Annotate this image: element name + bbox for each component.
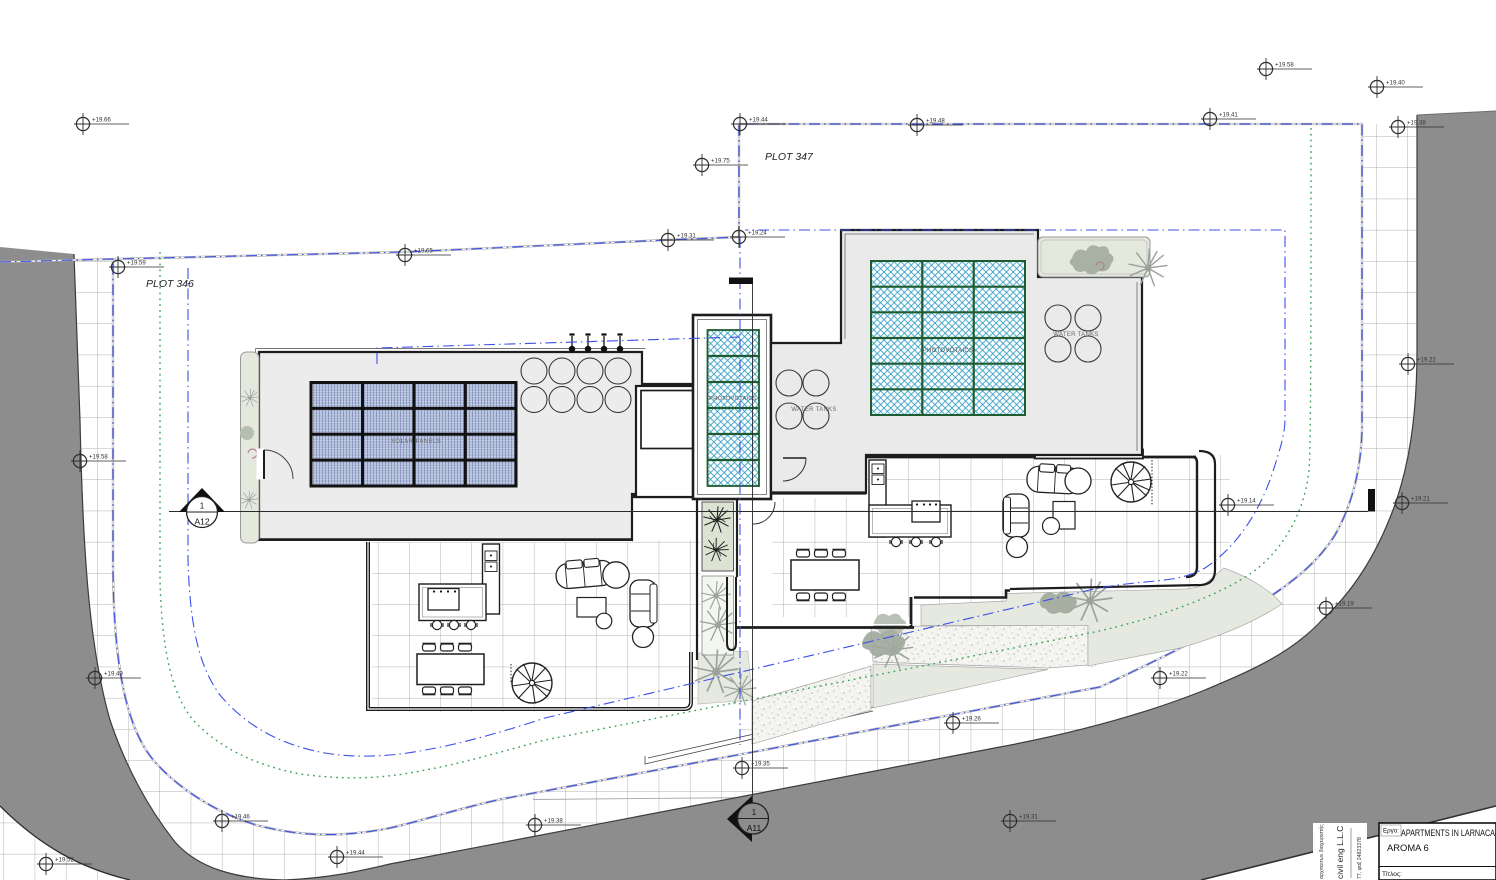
svg-text:+19.38: +19.38 <box>1407 120 1426 127</box>
svg-text:+19.22: +19.22 <box>1417 357 1436 364</box>
svg-text:WATER TANKS: WATER TANKS <box>791 407 836 413</box>
svg-text:+19.58: +19.58 <box>89 454 108 461</box>
svg-text:+19.66: +19.66 <box>92 117 111 124</box>
svg-text:+19.46: +19.46 <box>231 814 250 821</box>
svg-text:+19.44: +19.44 <box>346 850 365 857</box>
svg-text:+19.19: +19.19 <box>1335 601 1354 608</box>
svg-text:PLOT 346: PLOT 346 <box>146 278 194 290</box>
svg-text:PHOTOVOTAICS: PHOTOVOTAICS <box>709 396 757 402</box>
svg-text:+19.24: +19.24 <box>748 230 767 237</box>
svg-text:+19.49: +19.49 <box>104 671 123 678</box>
svg-text:Τίτλος:: Τίτλος: <box>1382 870 1402 878</box>
svg-text:+19.14: +19.14 <box>1237 498 1256 505</box>
svg-text:1: 1 <box>200 502 205 511</box>
svg-text:+19.44: +19.44 <box>749 117 768 124</box>
svg-text:+19.31: +19.31 <box>1019 814 1038 821</box>
svg-text:1: 1 <box>752 808 757 817</box>
svg-text:+19.65: +19.65 <box>414 248 433 255</box>
svg-text:PHOTOVOTAICS: PHOTOVOTAICS <box>923 348 974 354</box>
svg-text:+19.38: +19.38 <box>544 818 563 825</box>
svg-text:+19.48: +19.48 <box>926 118 945 125</box>
svg-text:A11: A11 <box>747 823 762 833</box>
svg-text:+19.75: +19.75 <box>711 158 730 165</box>
svg-text:SOLAR PANELS: SOLAR PANELS <box>391 439 441 445</box>
svg-text:+19.26: +19.26 <box>962 716 981 723</box>
svg-text:Εργο:: Εργο: <box>1383 828 1399 835</box>
svg-text:+19.59: +19.59 <box>127 260 146 267</box>
svg-text:A12: A12 <box>194 517 209 527</box>
svg-text:+19.58: +19.58 <box>1275 62 1294 69</box>
svg-text:+19.41: +19.41 <box>1219 112 1238 119</box>
svg-text:civil eng L.L.C: civil eng L.L.C <box>1335 826 1345 879</box>
svg-text:PLOT 347: PLOT 347 <box>765 151 814 163</box>
svg-text:77, φαξ 24823378: 77, φαξ 24823378 <box>1357 837 1363 879</box>
svg-text:AROMA 6: AROMA 6 <box>1387 842 1429 853</box>
svg-text:+19.31: +19.31 <box>677 233 696 240</box>
svg-text:+19.35: +19.35 <box>751 761 770 768</box>
svg-text:αρχιτεκτων διαχειριστής: αρχιτεκτων διαχειριστής <box>1318 824 1325 879</box>
svg-text:+19.52: +19.52 <box>55 857 74 864</box>
svg-text:WATER TANKS: WATER TANKS <box>1053 332 1098 338</box>
svg-text:APARTMENTS IN LARNACA: APARTMENTS IN LARNACA <box>1401 828 1496 838</box>
svg-text:+19.40: +19.40 <box>1386 80 1405 87</box>
svg-text:+19.22: +19.22 <box>1169 671 1188 678</box>
svg-text:+19.21: +19.21 <box>1411 496 1430 503</box>
